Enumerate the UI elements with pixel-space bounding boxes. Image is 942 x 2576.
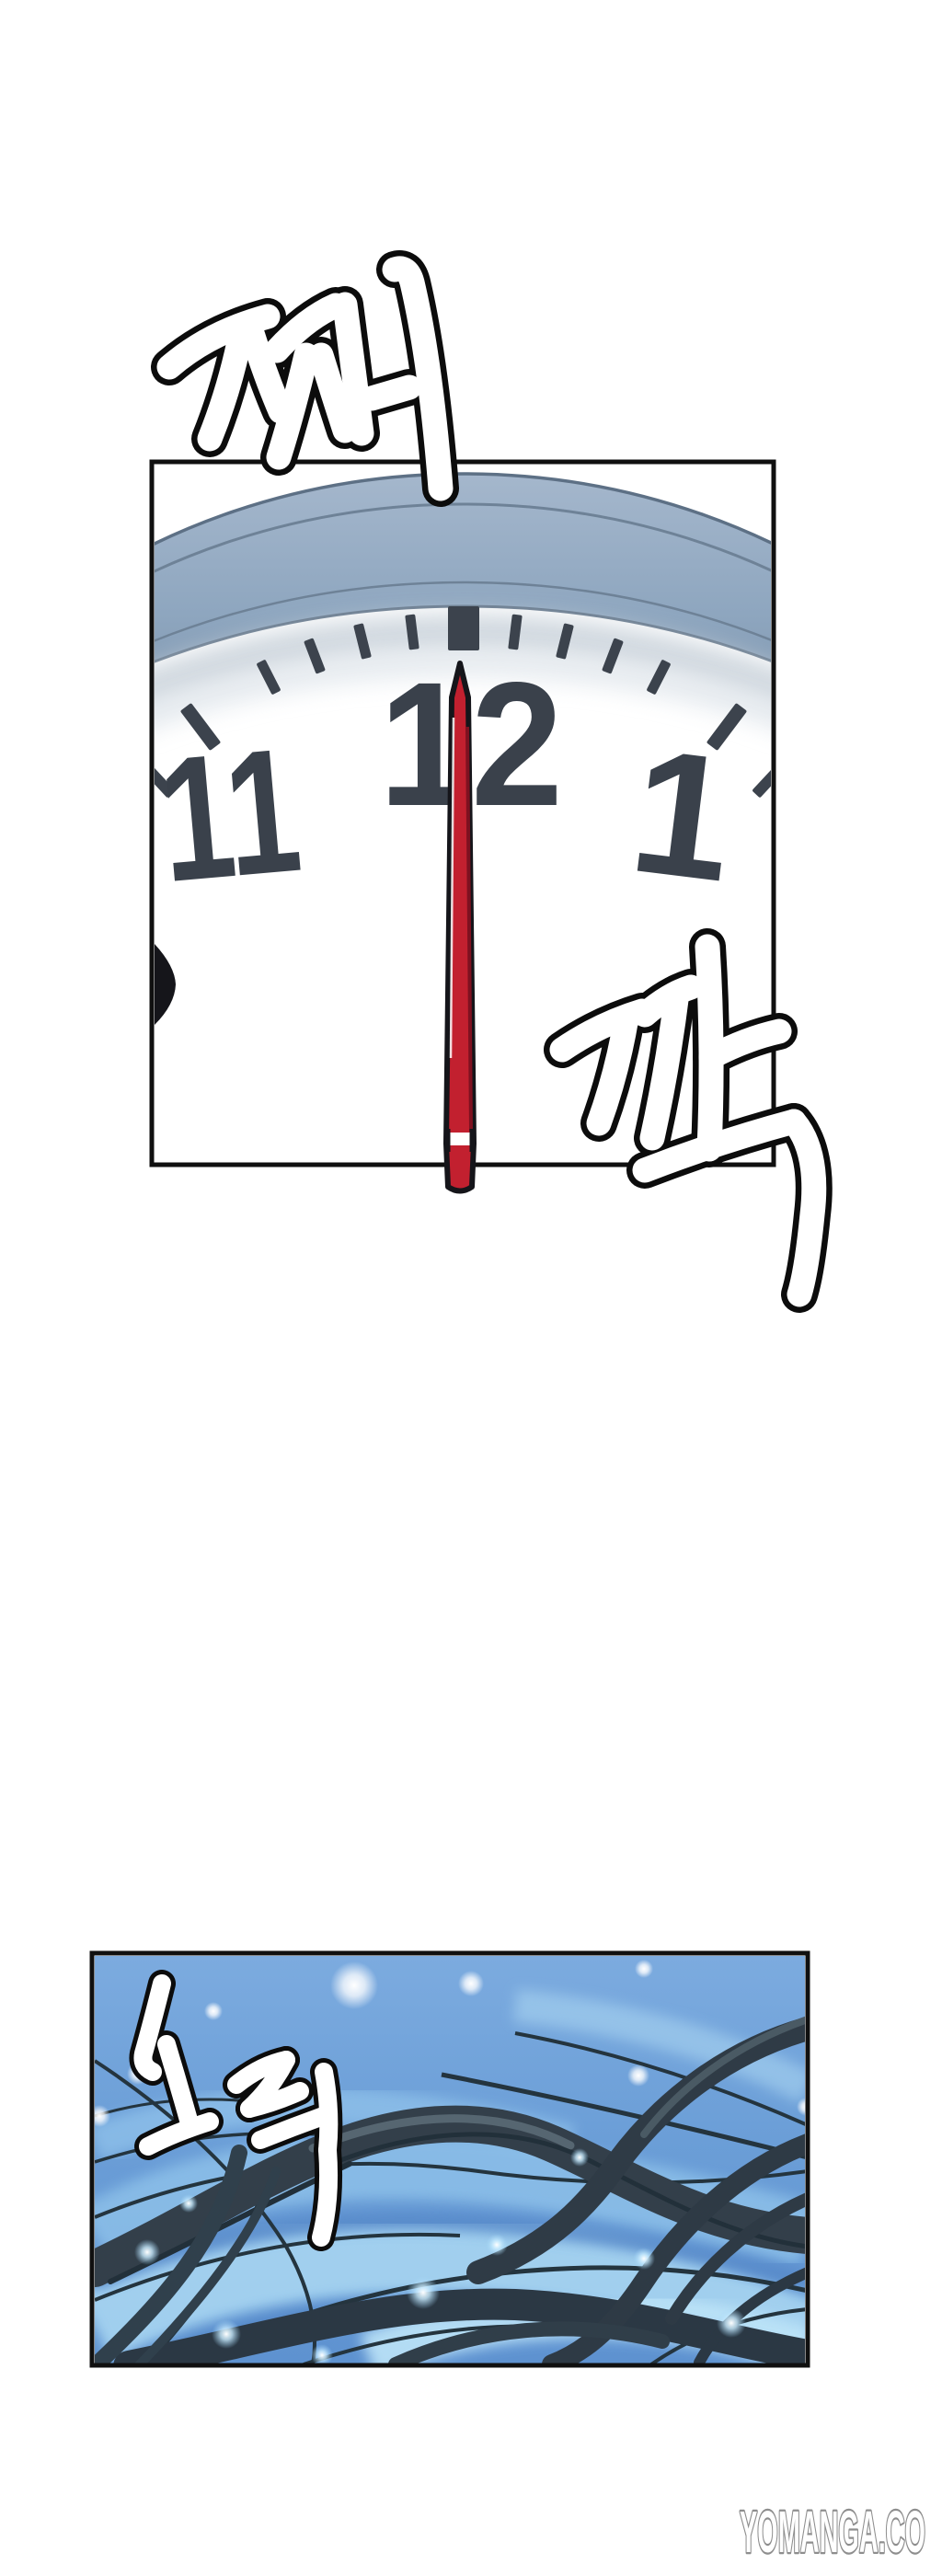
tick-mark-12	[448, 606, 479, 650]
manga-page: 11 12 1	[0, 0, 942, 2576]
clock-number-11: 11	[153, 710, 307, 919]
watermark-text: YOMANGA.CO	[740, 2499, 925, 2565]
hair-panel	[88, 1953, 815, 2366]
manga-artwork: 11 12 1	[0, 0, 942, 2576]
second-hand	[446, 663, 474, 1191]
second-hand-gap	[450, 1133, 471, 1145]
